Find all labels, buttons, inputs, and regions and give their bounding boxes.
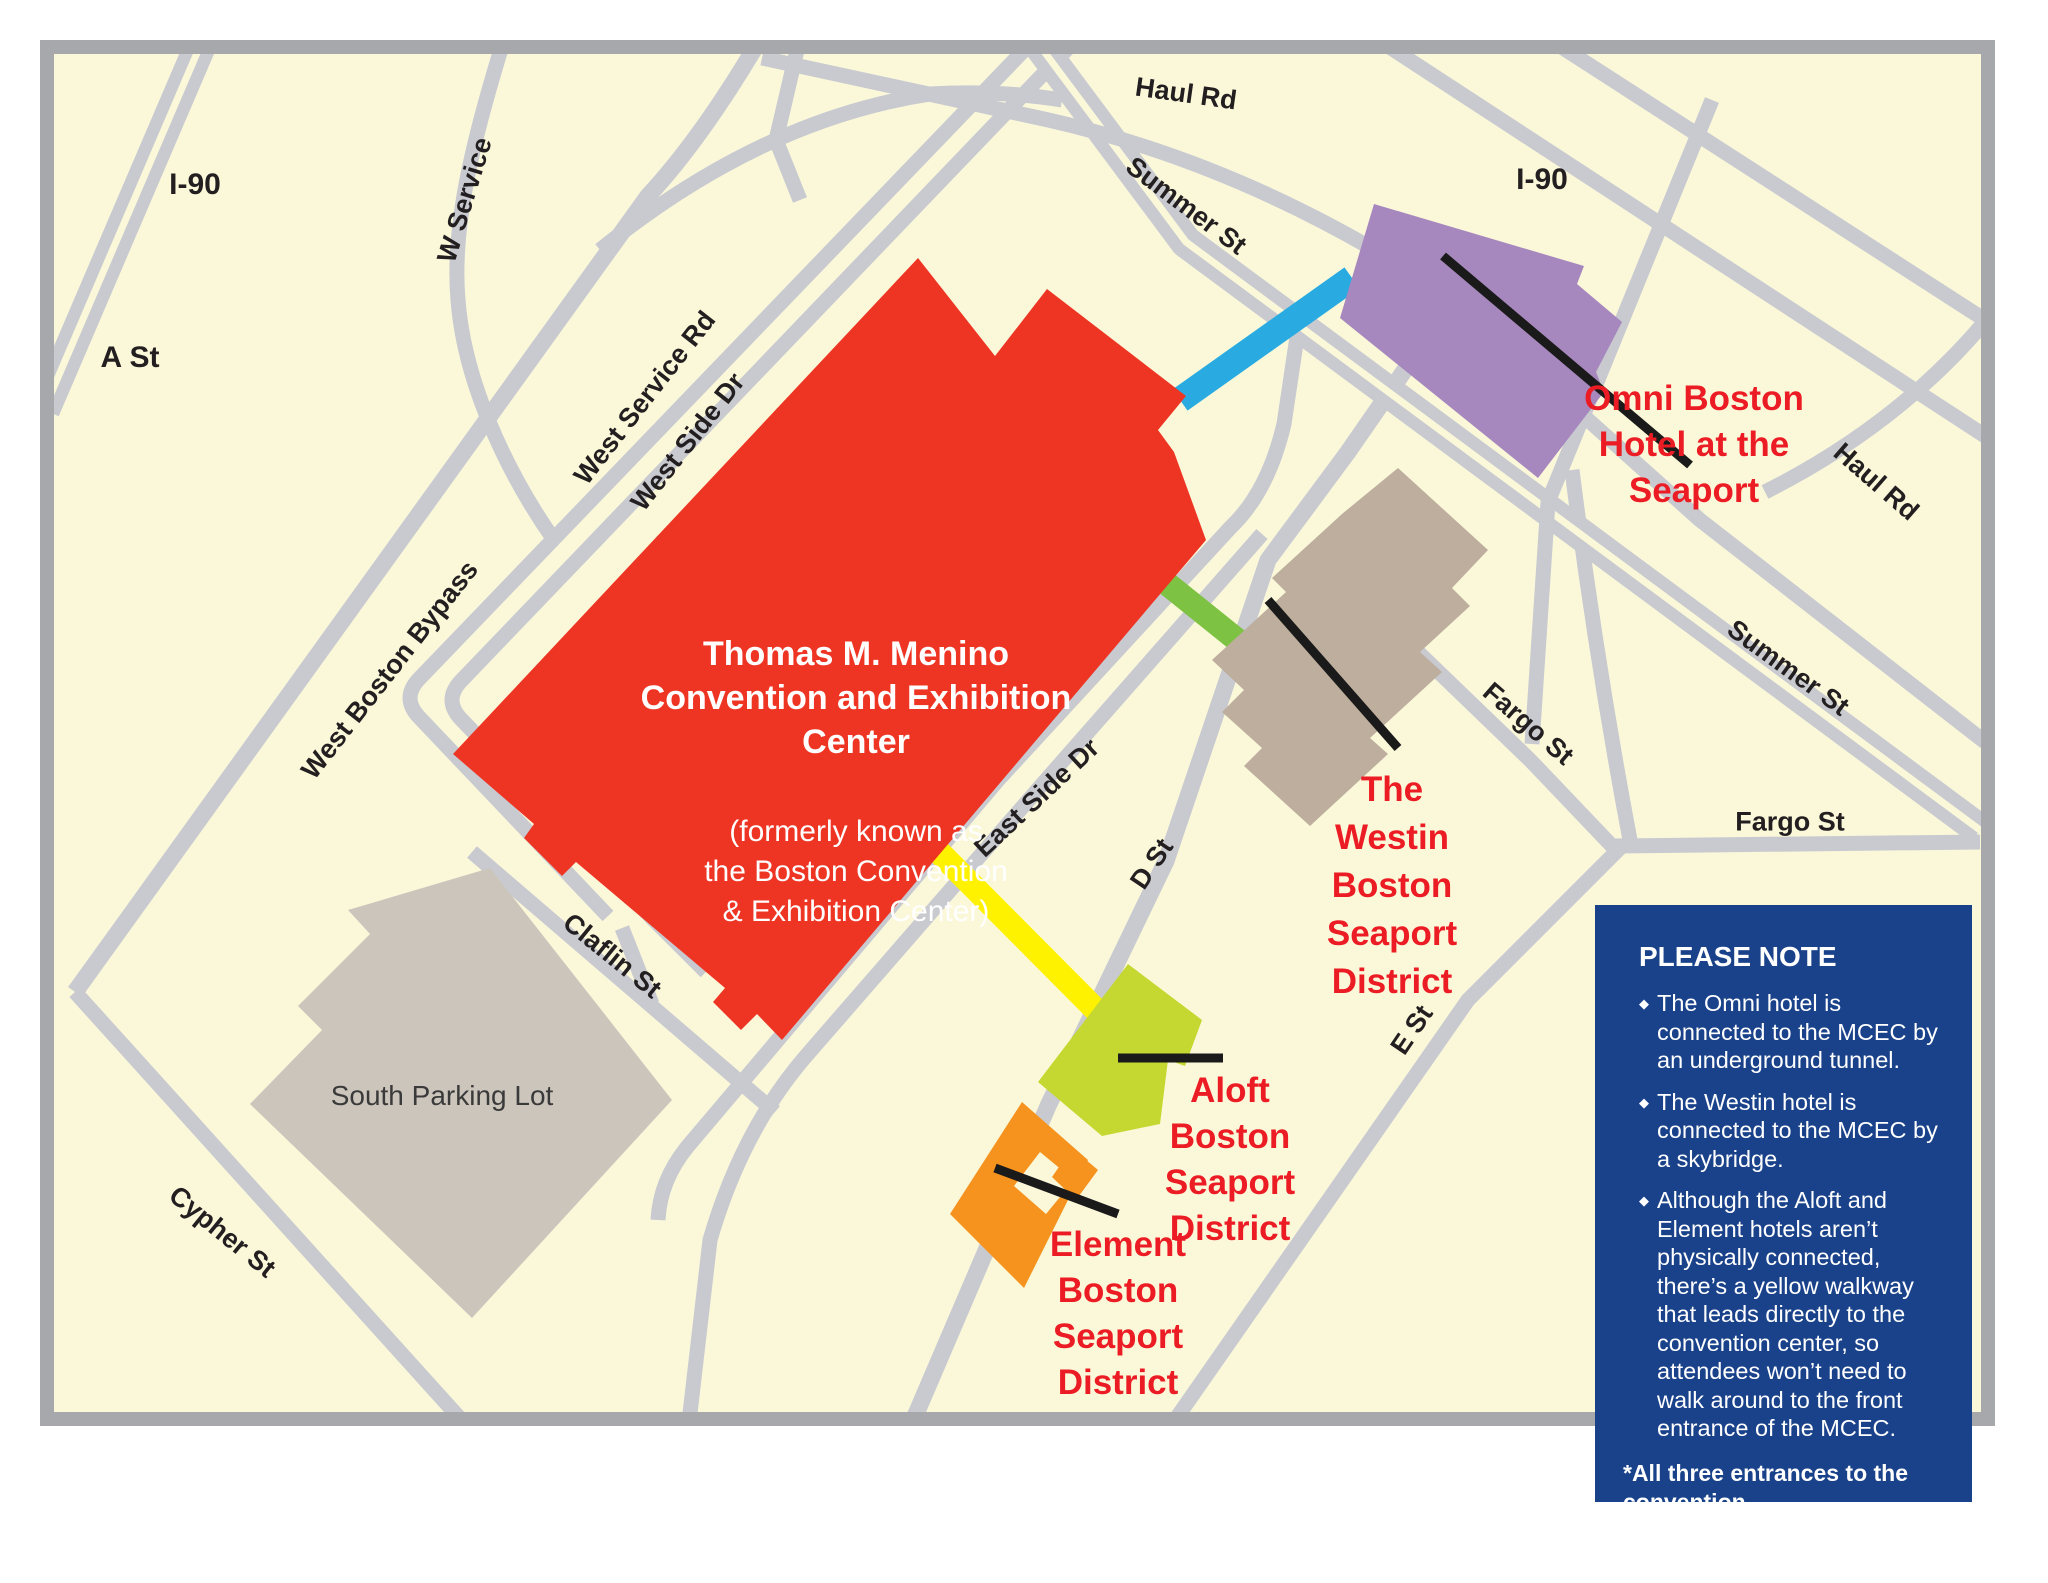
- note-bullet-aloft-element: ◆ Although the Aloft and Element hotels …: [1639, 1186, 1948, 1443]
- convention-center-subtitle: (formerly known as the Boston Convention…: [704, 812, 1008, 932]
- note-bullet-aloft-element-text: Although the Aloft and Element hotels ar…: [1657, 1186, 1914, 1443]
- label-i90-left: I-90: [169, 168, 221, 202]
- note-footnote: *All three entrances to the convention c…: [1623, 1459, 1948, 1575]
- bullet-diamond-icon: ◆: [1639, 990, 1657, 1075]
- please-note-box: PLEASE NOTE ◆ The Omni hotel is connecte…: [1595, 905, 1972, 1502]
- note-bullet-westin-text: The Westin hotel is connected to the MCE…: [1657, 1088, 1938, 1174]
- element-hotel-label: Element Boston Seaport District: [1050, 1222, 1186, 1406]
- note-bullet-omni: ◆ The Omni hotel is connected to the MCE…: [1639, 989, 1948, 1075]
- note-heading: PLEASE NOTE: [1639, 941, 1948, 973]
- label-south-parking-lot: South Parking Lot: [331, 1080, 554, 1112]
- omni-hotel-label: Omni Boston Hotel at the Seaport: [1584, 376, 1804, 514]
- label-i90-right: I-90: [1516, 163, 1568, 197]
- westin-hotel-label: The Westin Boston Seaport District: [1327, 766, 1457, 1006]
- bullet-diamond-icon: ◆: [1639, 1187, 1657, 1443]
- map-page: I-90 A St W Service West Service Rd West…: [0, 0, 2048, 1583]
- road-fargo-st-horiz: [1612, 842, 1980, 846]
- convention-center-title: Thomas M. Menino Convention and Exhibiti…: [641, 632, 1072, 764]
- label-a-st: A St: [101, 341, 160, 375]
- bullet-diamond-icon: ◆: [1639, 1089, 1657, 1174]
- note-bullet-westin: ◆ The Westin hotel is connected to the M…: [1639, 1088, 1948, 1174]
- label-fargo-st-horiz: Fargo St: [1735, 807, 1845, 838]
- note-bullet-omni-text: The Omni hotel is connected to the MCEC …: [1657, 989, 1938, 1075]
